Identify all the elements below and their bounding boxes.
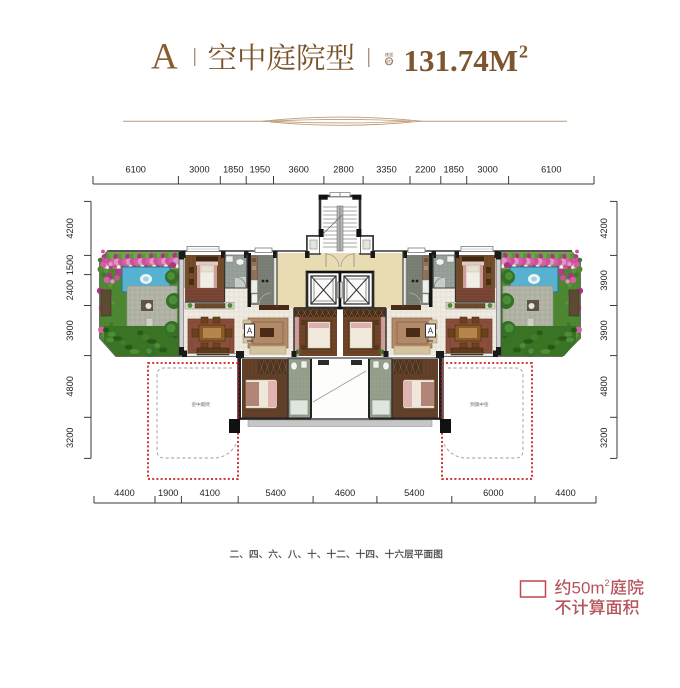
svg-text:3350: 3350: [376, 165, 396, 175]
svg-text:3000: 3000: [477, 165, 497, 175]
svg-text:3900: 3900: [65, 320, 75, 340]
svg-text:2400: 2400: [65, 280, 75, 300]
svg-text:3200: 3200: [599, 428, 609, 448]
svg-text:3200: 3200: [65, 428, 75, 448]
svg-text:6100: 6100: [541, 165, 561, 175]
svg-text:2200: 2200: [415, 165, 435, 175]
svg-text:6100: 6100: [125, 165, 145, 175]
svg-text:1950: 1950: [250, 165, 270, 175]
svg-text:5400: 5400: [265, 488, 285, 498]
svg-text:3000: 3000: [189, 165, 209, 175]
svg-text:131.74M: 131.74M: [404, 43, 519, 78]
svg-text:4200: 4200: [65, 218, 75, 238]
svg-text:4400: 4400: [555, 488, 575, 498]
svg-text:A: A: [151, 37, 178, 78]
svg-text:1850: 1850: [443, 165, 463, 175]
svg-text:4800: 4800: [599, 376, 609, 396]
svg-text:4200: 4200: [599, 218, 609, 238]
svg-text:A: A: [247, 327, 253, 336]
svg-text:6000: 6000: [483, 488, 503, 498]
svg-text:2800: 2800: [333, 165, 353, 175]
svg-text:1850: 1850: [223, 165, 243, 175]
svg-text:50m: 50m: [572, 579, 605, 598]
svg-text:4800: 4800: [65, 376, 75, 396]
svg-text:1500: 1500: [65, 255, 75, 275]
svg-text:3600: 3600: [288, 165, 308, 175]
svg-text:5400: 5400: [404, 488, 424, 498]
svg-text:4600: 4600: [335, 488, 355, 498]
svg-text:3900: 3900: [599, 270, 609, 290]
svg-text:2: 2: [519, 42, 528, 62]
svg-text:2: 2: [605, 578, 610, 588]
svg-text:3900: 3900: [599, 320, 609, 340]
svg-text:1900: 1900: [158, 488, 178, 498]
svg-text:4100: 4100: [200, 488, 220, 498]
svg-text:4400: 4400: [114, 488, 134, 498]
